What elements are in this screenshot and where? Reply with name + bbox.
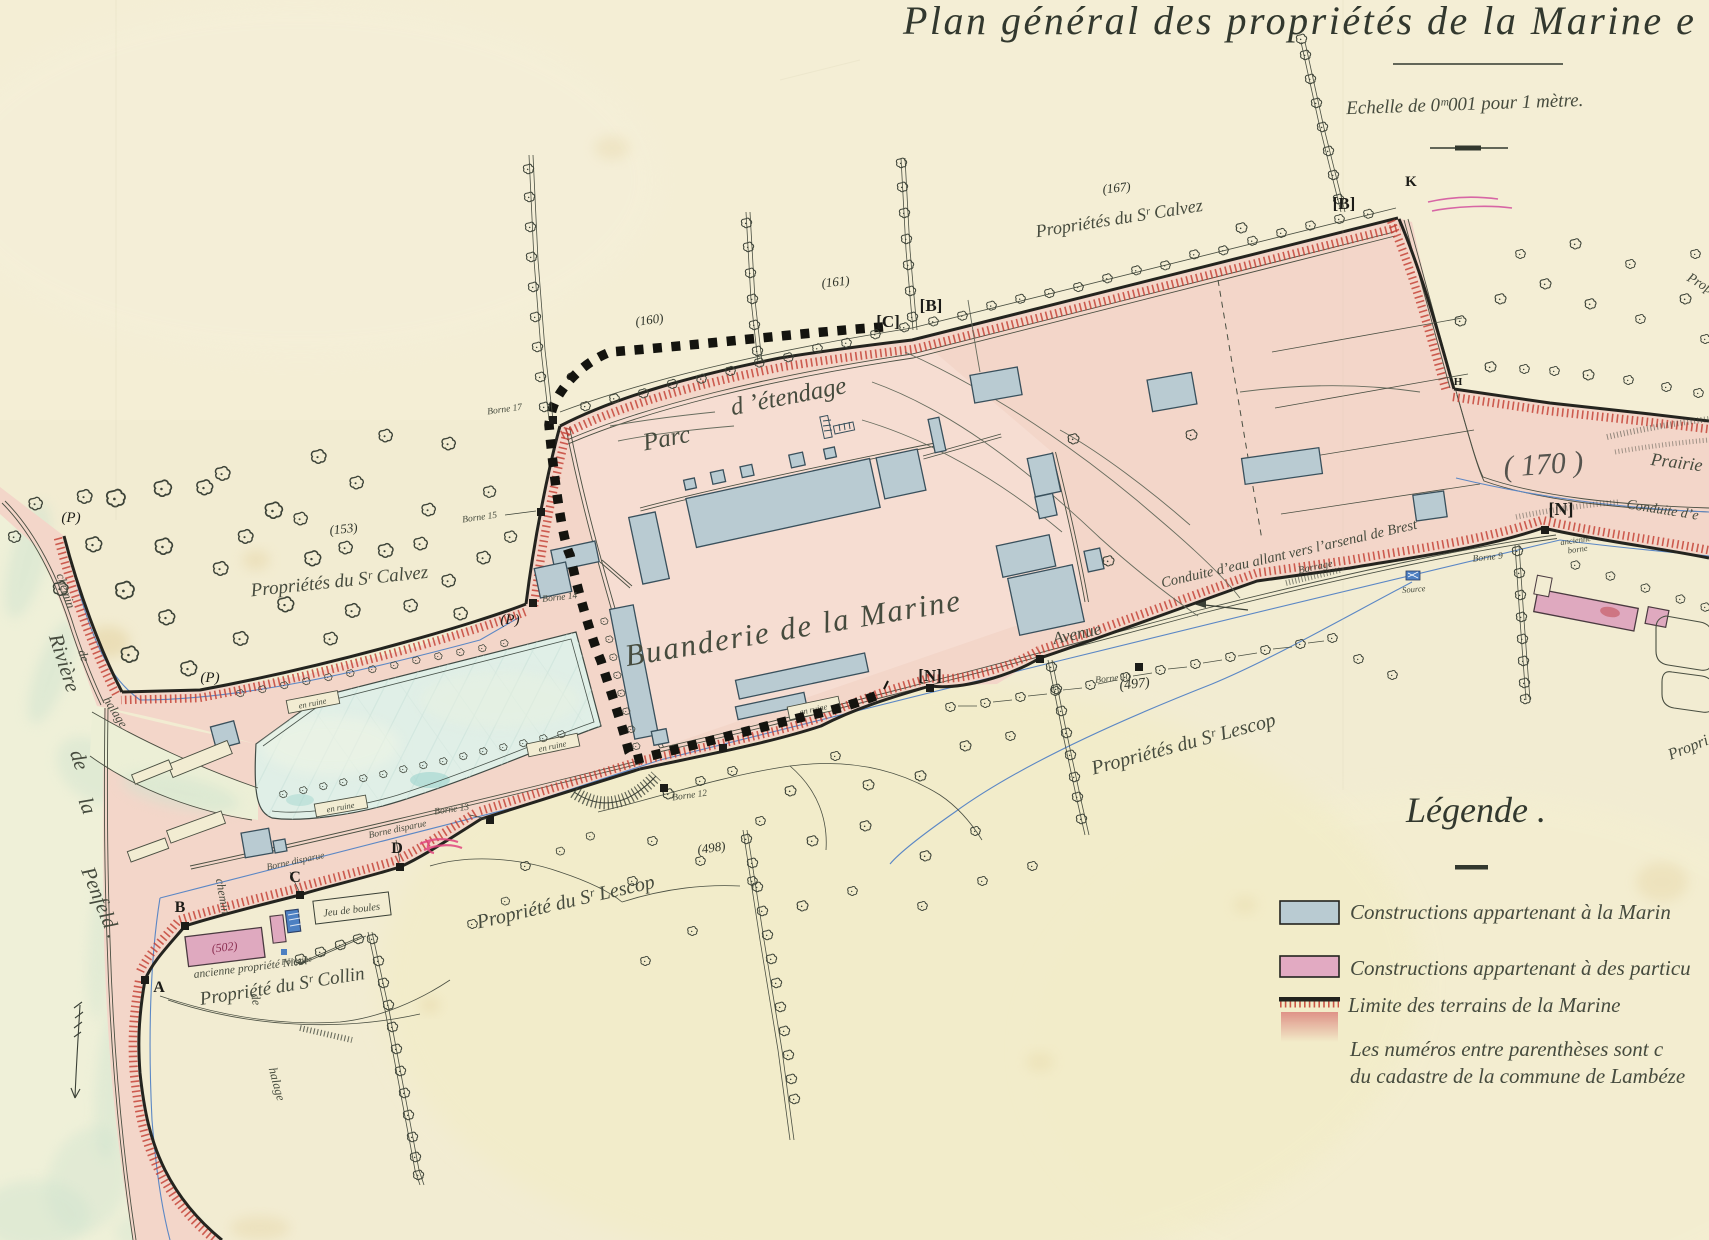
svg-text:B: B xyxy=(175,899,186,916)
svg-text:H: H xyxy=(1454,376,1463,388)
svg-text:Constructions appartenant à de: Constructions appartenant à des particu xyxy=(1350,956,1691,980)
svg-text:A: A xyxy=(153,979,165,996)
svg-text:[B]: [B] xyxy=(1333,194,1356,213)
svg-text:(161): (161) xyxy=(821,273,851,291)
svg-text:(P): (P) xyxy=(61,510,80,526)
svg-text:Les numéros entre parenthèses: Les numéros entre parenthèses sont c xyxy=(1349,1037,1664,1061)
svg-text:C: C xyxy=(289,869,301,886)
svg-text:Limite des terrains de la Mari: Limite des terrains de la Marine xyxy=(1347,993,1620,1017)
svg-text:Plan général des propriétés de: Plan général des propriétés de la Marine… xyxy=(902,0,1696,43)
svg-text:(497): (497) xyxy=(1119,675,1151,693)
svg-text:du cadastre de la commune de L: du cadastre de la commune de Lambéze xyxy=(1350,1064,1685,1088)
svg-text:(P): (P) xyxy=(200,670,219,686)
svg-text:D: D xyxy=(391,840,403,857)
svg-text:Source: Source xyxy=(1402,583,1426,595)
svg-text:K: K xyxy=(1405,174,1417,190)
svg-text:[N]: [N] xyxy=(1549,499,1574,519)
svg-text:C: C xyxy=(566,369,575,383)
svg-text:Légende .: Légende . xyxy=(1405,790,1546,830)
svg-text:(153): (153) xyxy=(329,520,359,538)
svg-text:(P): (P) xyxy=(500,612,519,628)
svg-text:(167): (167) xyxy=(1102,179,1132,197)
svg-text:[B]: [B] xyxy=(920,296,943,315)
svg-text:[N]: [N] xyxy=(918,666,942,685)
svg-text:( 170 ): ( 170 ) xyxy=(1502,445,1584,483)
svg-text:Constructions appartenant à la: Constructions appartenant à la Marin xyxy=(1350,900,1671,924)
svg-text:[C]: [C] xyxy=(876,312,900,331)
